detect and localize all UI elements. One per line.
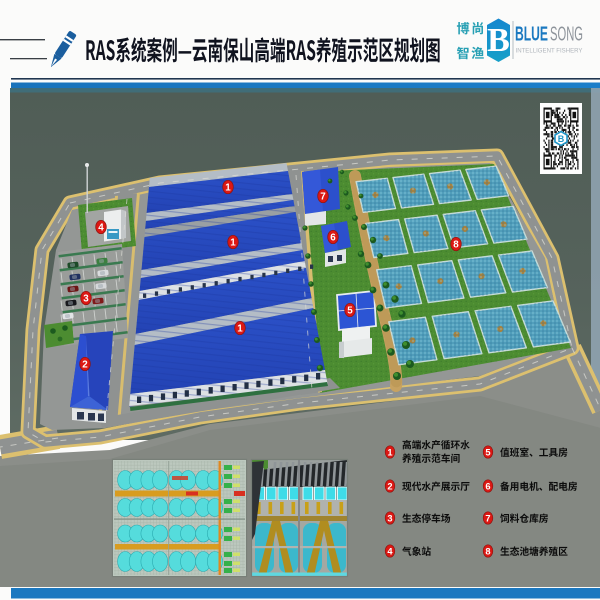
svg-text:5: 5 — [485, 447, 490, 457]
svg-text:1: 1 — [237, 324, 243, 335]
svg-text:8: 8 — [453, 240, 459, 251]
svg-text:6: 6 — [330, 233, 336, 244]
svg-text:3: 3 — [387, 513, 392, 523]
svg-text:B: B — [558, 134, 565, 144]
svg-text:1: 1 — [387, 447, 392, 457]
svg-text:4: 4 — [98, 223, 104, 234]
svg-text:3: 3 — [83, 294, 89, 305]
svg-text:4: 4 — [387, 546, 393, 556]
svg-text:SONG: SONG — [550, 24, 583, 46]
svg-text:INTELLIGENT FISHERY: INTELLIGENT FISHERY — [516, 48, 583, 55]
svg-text:8: 8 — [485, 546, 490, 556]
svg-text:1: 1 — [230, 238, 236, 249]
svg-text:1: 1 — [225, 183, 231, 194]
svg-text:7: 7 — [320, 192, 326, 203]
svg-text:7: 7 — [485, 513, 490, 523]
svg-text:5: 5 — [347, 306, 353, 317]
svg-text:B: B — [487, 22, 510, 59]
svg-text:2: 2 — [387, 481, 392, 491]
svg-text:6: 6 — [485, 481, 490, 491]
svg-text:BLUE: BLUE — [515, 24, 548, 46]
svg-text:2: 2 — [82, 360, 88, 371]
